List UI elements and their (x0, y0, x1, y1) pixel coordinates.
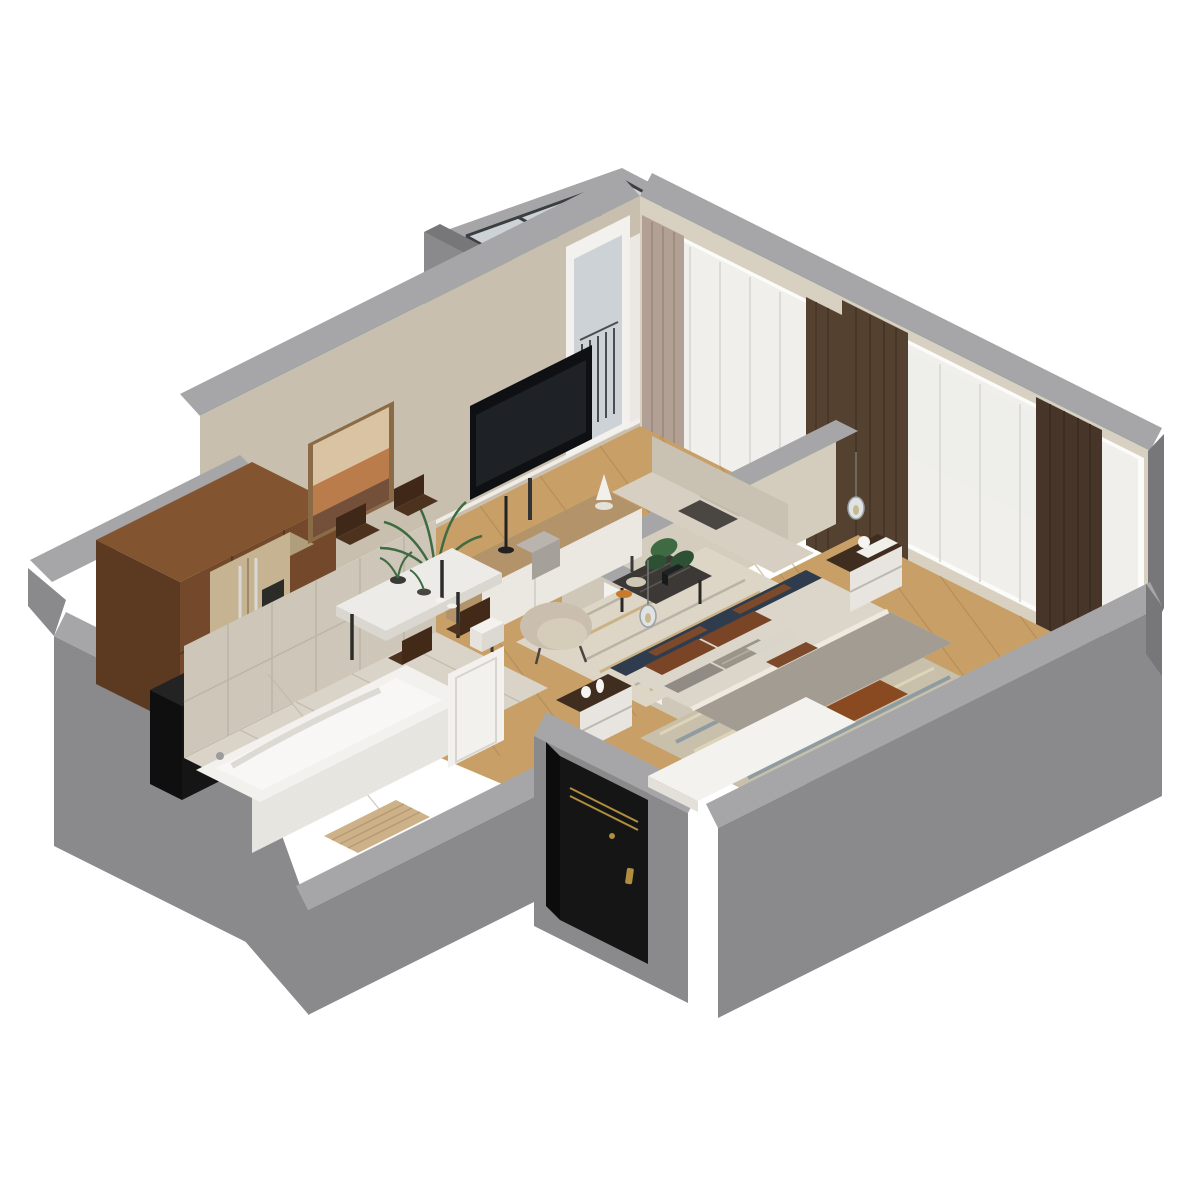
counter-side (150, 690, 182, 800)
entry-door-lock (609, 833, 615, 839)
candle-dish (616, 590, 632, 598)
pendant-bulb (645, 613, 651, 623)
armchair-seat (537, 618, 587, 650)
floorplan-render (0, 0, 1200, 1200)
tub-faucet (216, 752, 224, 760)
pendant-bulb2 (853, 505, 859, 515)
vase-white (581, 686, 591, 698)
vase-white2 (596, 679, 604, 693)
lamp-base (595, 502, 613, 510)
cup2 (447, 604, 457, 609)
cup (435, 598, 445, 603)
speaker-stand-base (498, 547, 514, 554)
ball-lamp (858, 536, 870, 548)
apartment-3d-scene (0, 0, 1200, 1200)
entry-door-jamb (546, 742, 560, 920)
decor-bowl (626, 577, 646, 587)
